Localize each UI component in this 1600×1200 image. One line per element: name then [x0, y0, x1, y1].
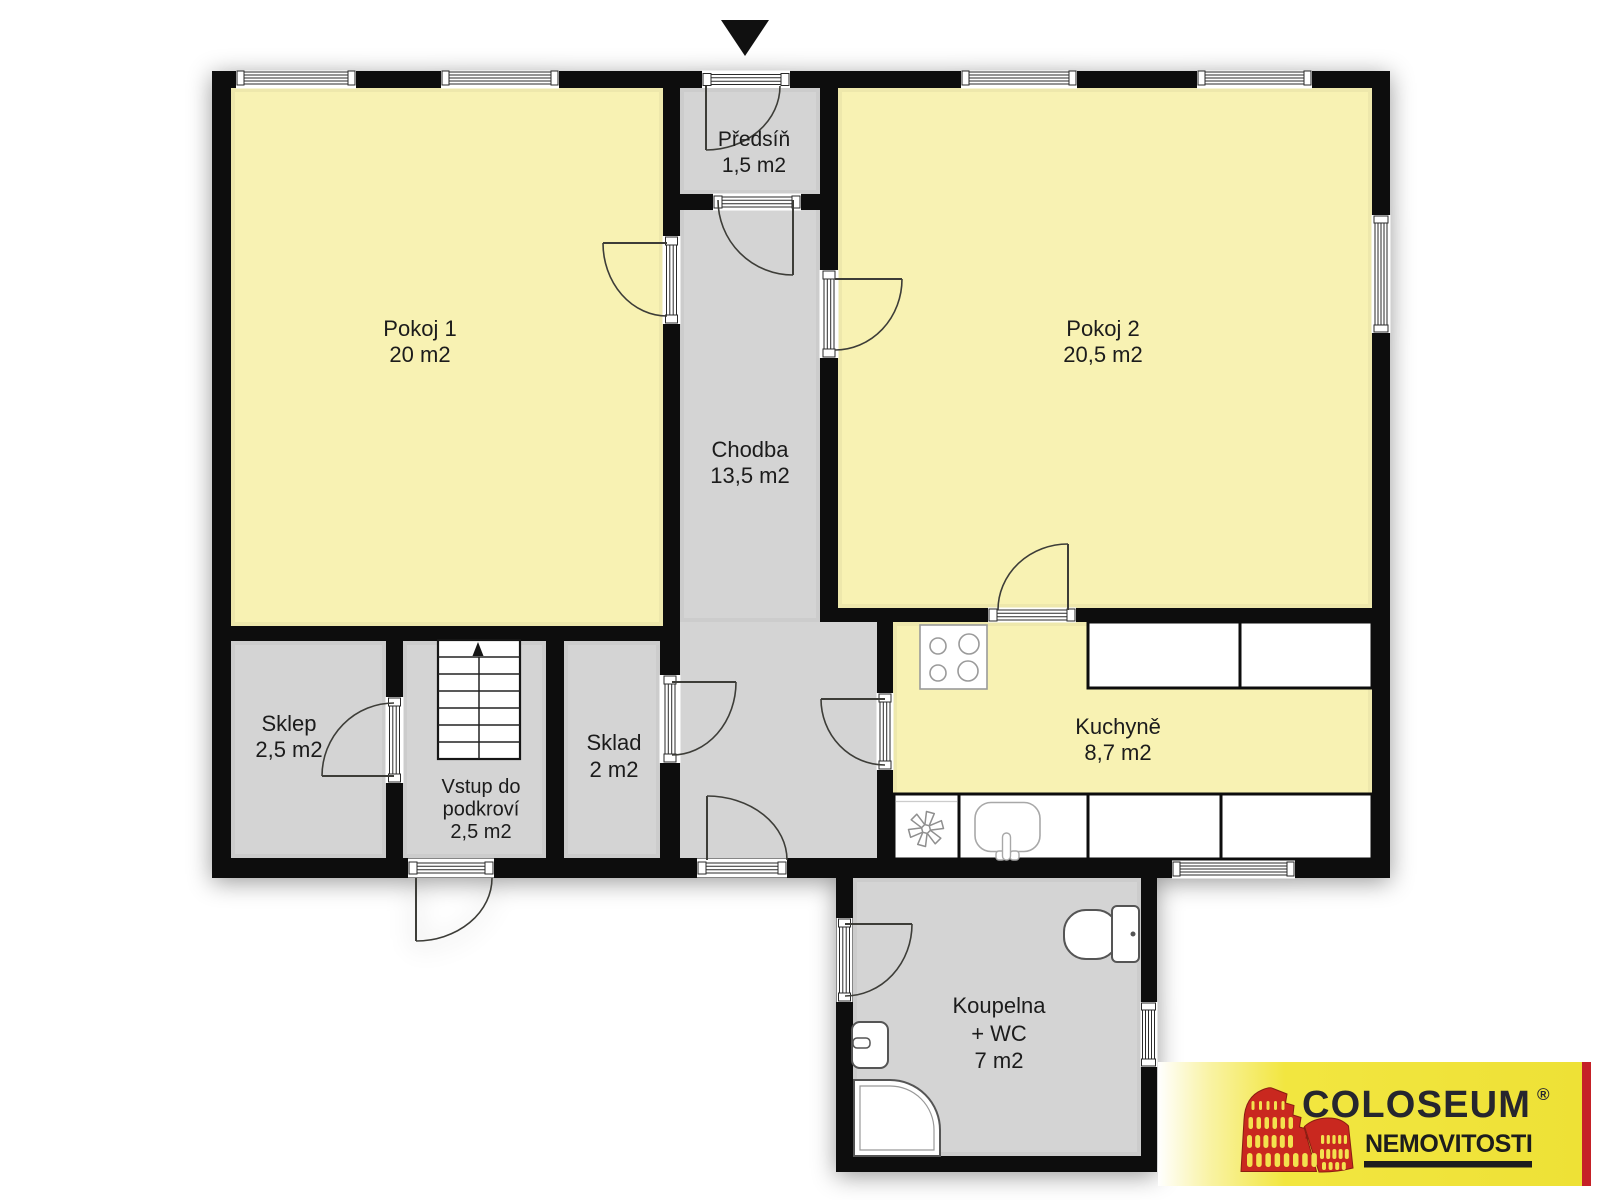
- svg-text:Předsíň: Předsíň: [718, 128, 790, 151]
- svg-text:8,7 m2: 8,7 m2: [1084, 740, 1151, 765]
- svg-text:NEMOVITOSTI: NEMOVITOSTI: [1365, 1130, 1532, 1158]
- svg-text:13,5 m2: 13,5 m2: [710, 463, 790, 488]
- svg-text:podkroví: podkroví: [443, 799, 520, 821]
- svg-text:20,5 m2: 20,5 m2: [1063, 342, 1143, 367]
- svg-text:20 m2: 20 m2: [389, 342, 450, 367]
- svg-text:Kuchyně: Kuchyně: [1075, 714, 1161, 739]
- svg-text:COLOSEUM: COLOSEUM: [1302, 1084, 1531, 1126]
- svg-text:Sklep: Sklep: [261, 711, 316, 736]
- svg-text:Koupelna: Koupelna: [953, 993, 1047, 1018]
- svg-text:2 m2: 2 m2: [590, 757, 639, 782]
- svg-text:Chodba: Chodba: [711, 437, 789, 462]
- svg-text:+ WC: + WC: [971, 1021, 1027, 1046]
- svg-text:1,5 m2: 1,5 m2: [722, 154, 786, 177]
- svg-text:7 m2: 7 m2: [975, 1048, 1024, 1073]
- svg-text:Pokoj 2: Pokoj 2: [1066, 316, 1139, 341]
- svg-text:®: ®: [1537, 1085, 1550, 1104]
- svg-text:Pokoj 1: Pokoj 1: [383, 316, 456, 341]
- svg-text:2,5 m2: 2,5 m2: [255, 737, 322, 762]
- svg-text:2,5 m2: 2,5 m2: [450, 821, 511, 843]
- svg-text:Vstup do: Vstup do: [442, 776, 521, 798]
- svg-text:Sklad: Sklad: [586, 730, 641, 755]
